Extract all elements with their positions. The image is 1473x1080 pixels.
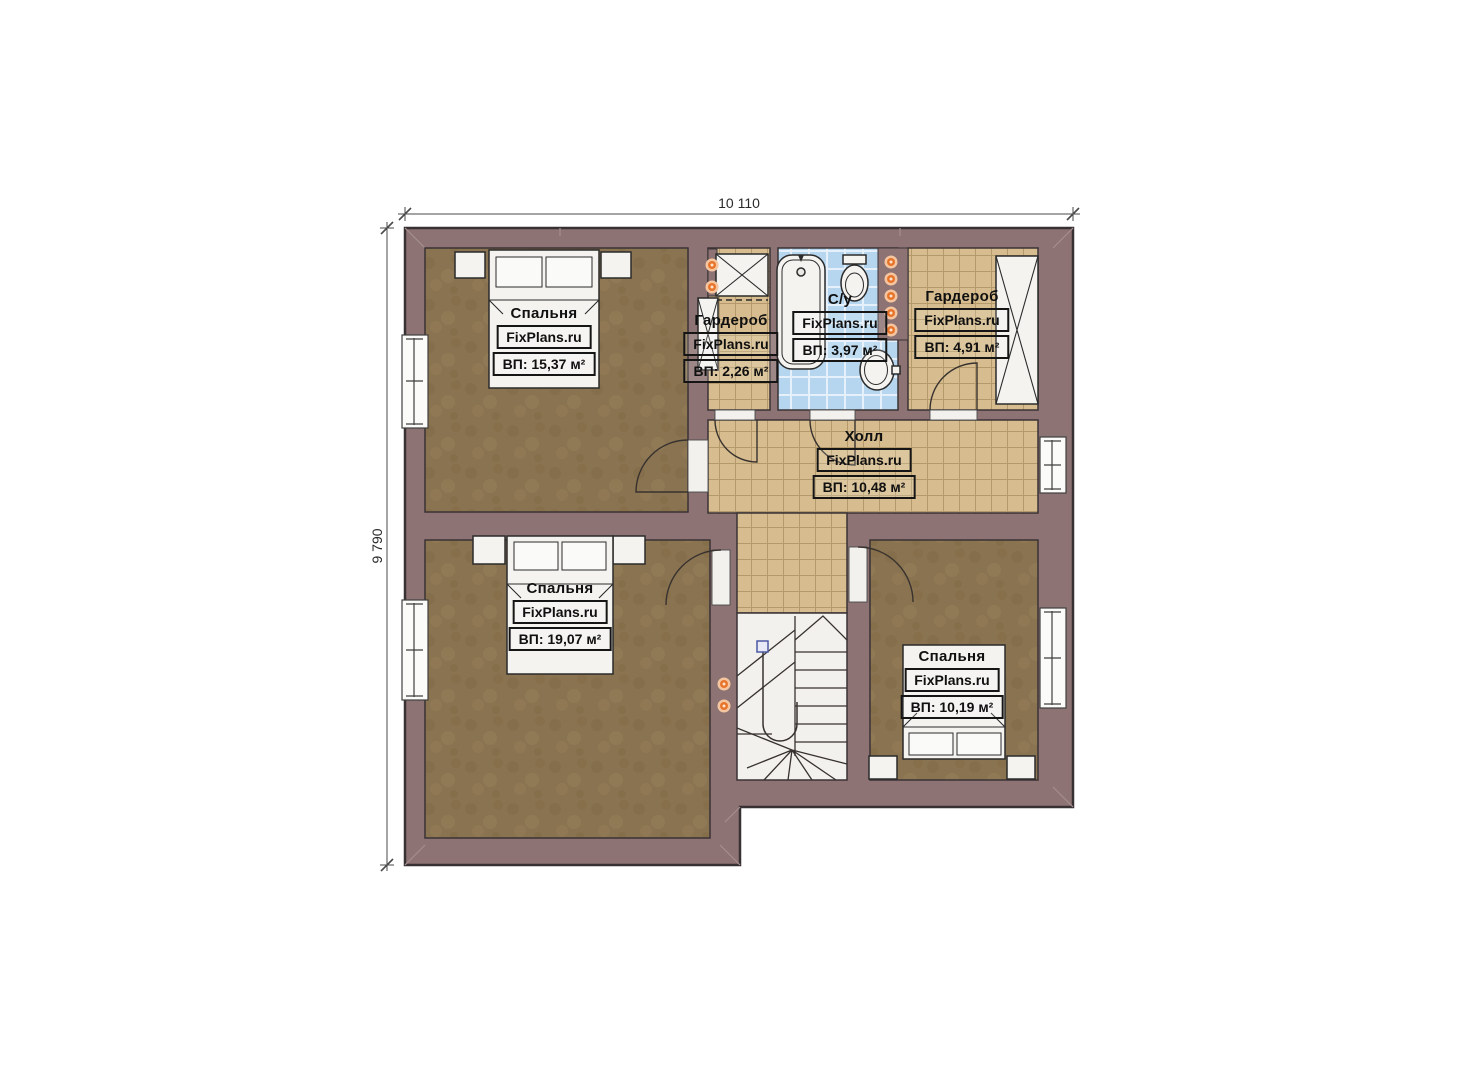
stairwell-floor	[737, 613, 847, 780]
door-threshold-wardrobe-left	[715, 410, 755, 420]
door-threshold-bedroom-top-left	[688, 440, 708, 492]
room-label-bedroom-bottom-left: Спальня FixPlans.ru ВП: 19,07 м²	[509, 580, 612, 651]
room-area: ВП: 3,97 м²	[793, 338, 888, 362]
nightstand	[1007, 756, 1035, 779]
room-name: Гардероб	[694, 312, 767, 329]
nightstand	[601, 252, 631, 278]
room-name: Спальня	[511, 305, 578, 322]
sink-tap	[892, 366, 900, 374]
room-name: С/у	[828, 291, 852, 308]
watermark: FixPlans.ru	[904, 668, 999, 692]
door-leaf-bedroom-bottom-right	[849, 547, 867, 602]
watermark: FixPlans.ru	[816, 448, 911, 472]
room-label-bathroom: С/у FixPlans.ru ВП: 3,97 м²	[792, 291, 887, 362]
window-bedroom-bottom-left	[402, 600, 428, 700]
door-threshold-wardrobe-right	[930, 410, 977, 420]
floor-plan-drawing	[0, 0, 1473, 1080]
room-area: ВП: 10,19 м²	[901, 695, 1004, 719]
pillow	[514, 542, 558, 570]
room-label-wardrobe-right: Гардероб FixPlans.ru ВП: 4,91 м²	[914, 288, 1009, 359]
room-name: Спальня	[527, 580, 594, 597]
room-label-bedroom-bottom-right: Спальня FixPlans.ru ВП: 10,19 м²	[901, 648, 1004, 719]
room-area: ВП: 10,48 м²	[813, 475, 916, 499]
pillow	[496, 257, 542, 287]
window-bedroom-top-left	[402, 335, 428, 428]
room-label-hall: Холл FixPlans.ru ВП: 10,48 м²	[813, 428, 916, 499]
door-threshold-bathroom	[810, 410, 855, 420]
room-area: ВП: 4,91 м²	[915, 335, 1010, 359]
room-name: Гардероб	[925, 288, 998, 305]
nightstand	[869, 756, 897, 779]
nightstand	[455, 252, 485, 278]
bathtub-drain	[797, 268, 805, 276]
watermark: FixPlans.ru	[496, 325, 591, 349]
nightstand	[613, 536, 645, 564]
stair-walk-line-marker	[757, 641, 768, 652]
pillow	[909, 733, 953, 755]
watermark: FixPlans.ru	[792, 311, 887, 335]
corridor-floor	[737, 513, 847, 613]
door-leaf-bedroom-bottom-left	[712, 550, 730, 605]
room-area: ВП: 2,26 м²	[684, 359, 779, 383]
dimension-height-label: 9 790	[369, 528, 385, 563]
window-hall	[1040, 437, 1066, 493]
room-label-bedroom-top-left: Спальня FixPlans.ru ВП: 15,37 м²	[493, 305, 596, 376]
room-area: ВП: 19,07 м²	[509, 627, 612, 651]
pillow	[546, 257, 592, 287]
watermark: FixPlans.ru	[683, 332, 778, 356]
pillow	[957, 733, 1001, 755]
room-name: Спальня	[919, 648, 986, 665]
room-area: ВП: 15,37 м²	[493, 352, 596, 376]
watermark: FixPlans.ru	[914, 308, 1009, 332]
nightstand	[473, 536, 505, 564]
washing-machine	[716, 254, 768, 300]
pillow	[562, 542, 606, 570]
room-name: Холл	[845, 428, 884, 445]
dimension-width-label: 10 110	[718, 195, 760, 211]
room-label-wardrobe-left: Гардероб FixPlans.ru ВП: 2,26 м²	[683, 312, 778, 383]
watermark: FixPlans.ru	[512, 600, 607, 624]
window-bedroom-bottom-right	[1040, 608, 1066, 708]
